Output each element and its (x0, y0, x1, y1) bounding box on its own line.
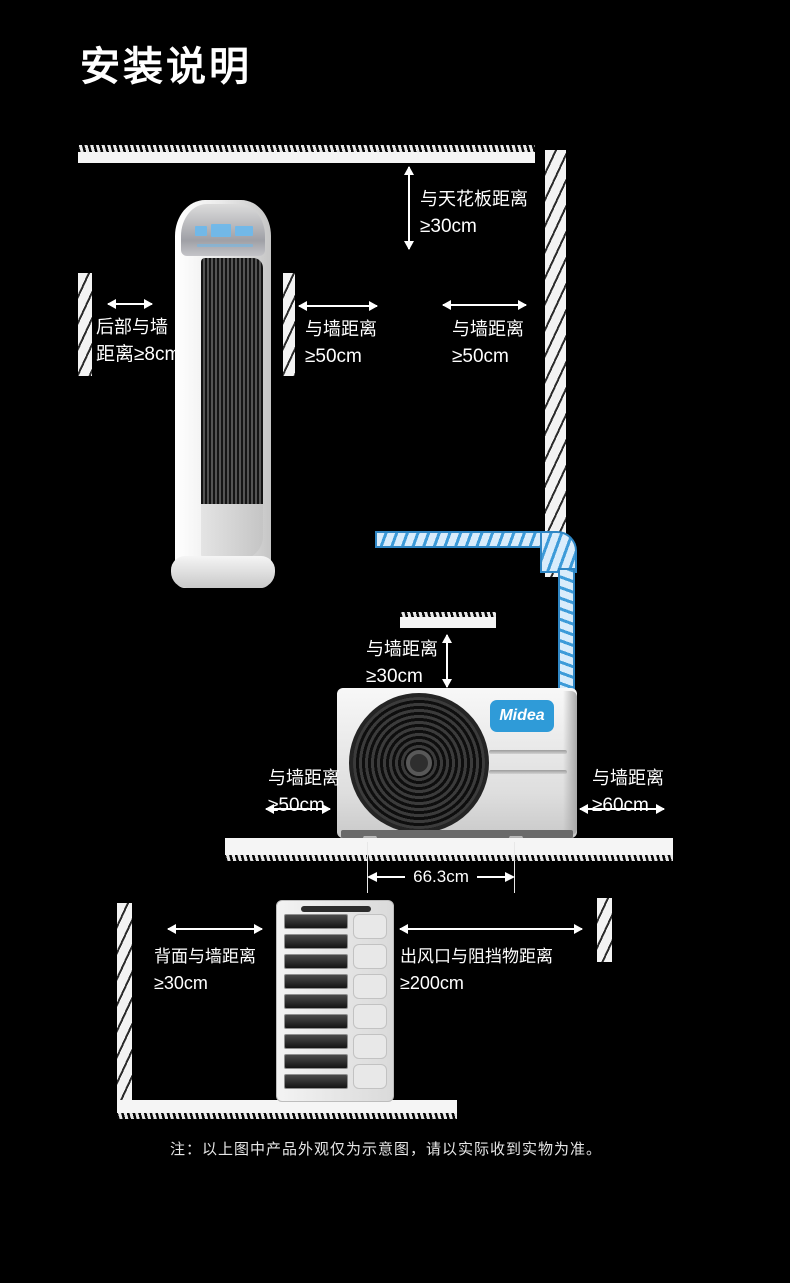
clearance-value: ≥30cm (154, 970, 256, 997)
unit-width-dimension: 66.3cm (367, 868, 515, 886)
panel-cell (353, 914, 387, 939)
fan-hub (406, 750, 432, 776)
ceiling-clearance-annotation: 与天花板距离 ≥30cm (420, 186, 528, 242)
vent-slot (284, 1054, 348, 1069)
indoor-unit-grille (201, 258, 263, 504)
installation-guide-page: 安装说明 与天花板距离 ≥30cm (0, 0, 790, 1283)
vent-slot (284, 914, 348, 929)
dimension-arrowhead-left (367, 872, 377, 882)
clearance-value: ≥50cm (452, 343, 524, 372)
odu-right-clearance-arrow (580, 808, 664, 810)
ceiling-hatch (78, 145, 535, 152)
panel-cell (353, 974, 387, 999)
clearance-value: ≥200cm (400, 970, 553, 997)
outlet-clearance-arrow (400, 928, 582, 930)
front-clearance-arrow (299, 305, 377, 307)
rear-clearance-arrow (108, 303, 152, 305)
dimension-line (377, 876, 405, 878)
panel-cell (353, 944, 387, 969)
pipe-bend (540, 531, 577, 573)
brand-logo: Midea (490, 700, 554, 732)
odu-right-clearance-annotation: 与墙距离 ≥60cm (592, 765, 664, 821)
odu-top-clearance-arrow (446, 635, 448, 687)
vent-slot (284, 1034, 348, 1049)
rear-wall-segment (78, 273, 92, 376)
back-diagram-right-wall (597, 898, 612, 962)
panel-cell (353, 1004, 387, 1029)
clearance-value: 距离≥8cm (96, 341, 180, 370)
clearance-value: ≥60cm (592, 792, 664, 821)
indoor-unit-lower-panel (201, 504, 263, 560)
unit-top-handle (301, 906, 371, 912)
ceiling-clearance-arrow (408, 167, 410, 249)
vent-slot (284, 1074, 348, 1089)
upper-wall-segment (400, 617, 496, 628)
page-title: 安装说明 (80, 34, 252, 92)
outdoor-unit-fan-grille (349, 693, 489, 833)
right-clearance-arrow (443, 304, 526, 306)
outlet-clearance-annotation: 出风口与阻挡物距离 ≥200cm (400, 944, 553, 997)
indoor-unit-base (171, 556, 275, 588)
clearance-label: 出风口与阻挡物距离 (400, 944, 553, 970)
indoor-unit (175, 200, 271, 588)
ceiling (78, 152, 535, 163)
side-vent (489, 750, 567, 754)
dimension-arrowhead-right (505, 872, 515, 882)
display-led (195, 226, 207, 236)
clearance-label: 与墙距离 (366, 636, 438, 663)
back-diagram-left-wall (117, 903, 132, 1103)
vent-slot (284, 934, 348, 949)
dimension-line (477, 876, 505, 878)
side-vent (489, 770, 567, 774)
clearance-label: 与墙距离 (305, 316, 377, 343)
vent-slot (284, 994, 348, 1009)
display-led (197, 244, 253, 247)
display-led (211, 224, 231, 237)
clearance-label: 与墙距离 (268, 765, 340, 792)
vent-slot (284, 974, 348, 989)
front-wall-segment (283, 273, 295, 376)
clearance-value: ≥30cm (420, 213, 528, 242)
panel-cell (353, 1064, 387, 1089)
unit-side-shade (563, 691, 577, 835)
unit-width-value: 66.3cm (405, 867, 477, 887)
ground (225, 838, 673, 855)
odu-top-clearance-annotation: 与墙距离 ≥30cm (366, 636, 438, 692)
right-wall (545, 150, 566, 577)
rear-clearance-annotation: 后部与墙 距离≥8cm (96, 314, 180, 370)
outdoor-unit-front: Midea (337, 688, 577, 838)
clearance-label: 与墙距离 (592, 765, 664, 792)
clearance-label: 与墙距离 (452, 316, 524, 343)
back-clearance-annotation: 背面与墙距离 ≥30cm (154, 944, 256, 997)
back-diagram-floor-hatch (117, 1113, 457, 1119)
panel-cell (353, 1034, 387, 1059)
vent-slot (284, 1014, 348, 1029)
indoor-unit-display-panel (181, 204, 265, 256)
back-clearance-arrow (168, 928, 262, 930)
vent-slot (284, 954, 348, 969)
clearance-label: 后部与墙 (96, 314, 180, 341)
display-led (235, 226, 253, 236)
outdoor-unit-back (276, 900, 394, 1102)
ground-hatch (225, 855, 673, 861)
odu-left-clearance-arrow (266, 808, 330, 810)
front-clearance-annotation: 与墙距离 ≥50cm (305, 316, 377, 372)
coil-vent-slots (284, 914, 348, 1094)
side-panel (353, 914, 387, 1094)
clearance-label: 与天花板距离 (420, 186, 528, 213)
clearance-value: ≥50cm (305, 343, 377, 372)
disclaimer-note: 注：以上图中产品外观仅为示意图，请以实际收到实物为准。 (170, 1138, 602, 1159)
clearance-label: 背面与墙距离 (154, 944, 256, 970)
pipe-horizontal-segment (375, 531, 545, 548)
right-clearance-annotation: 与墙距离 ≥50cm (452, 316, 524, 372)
